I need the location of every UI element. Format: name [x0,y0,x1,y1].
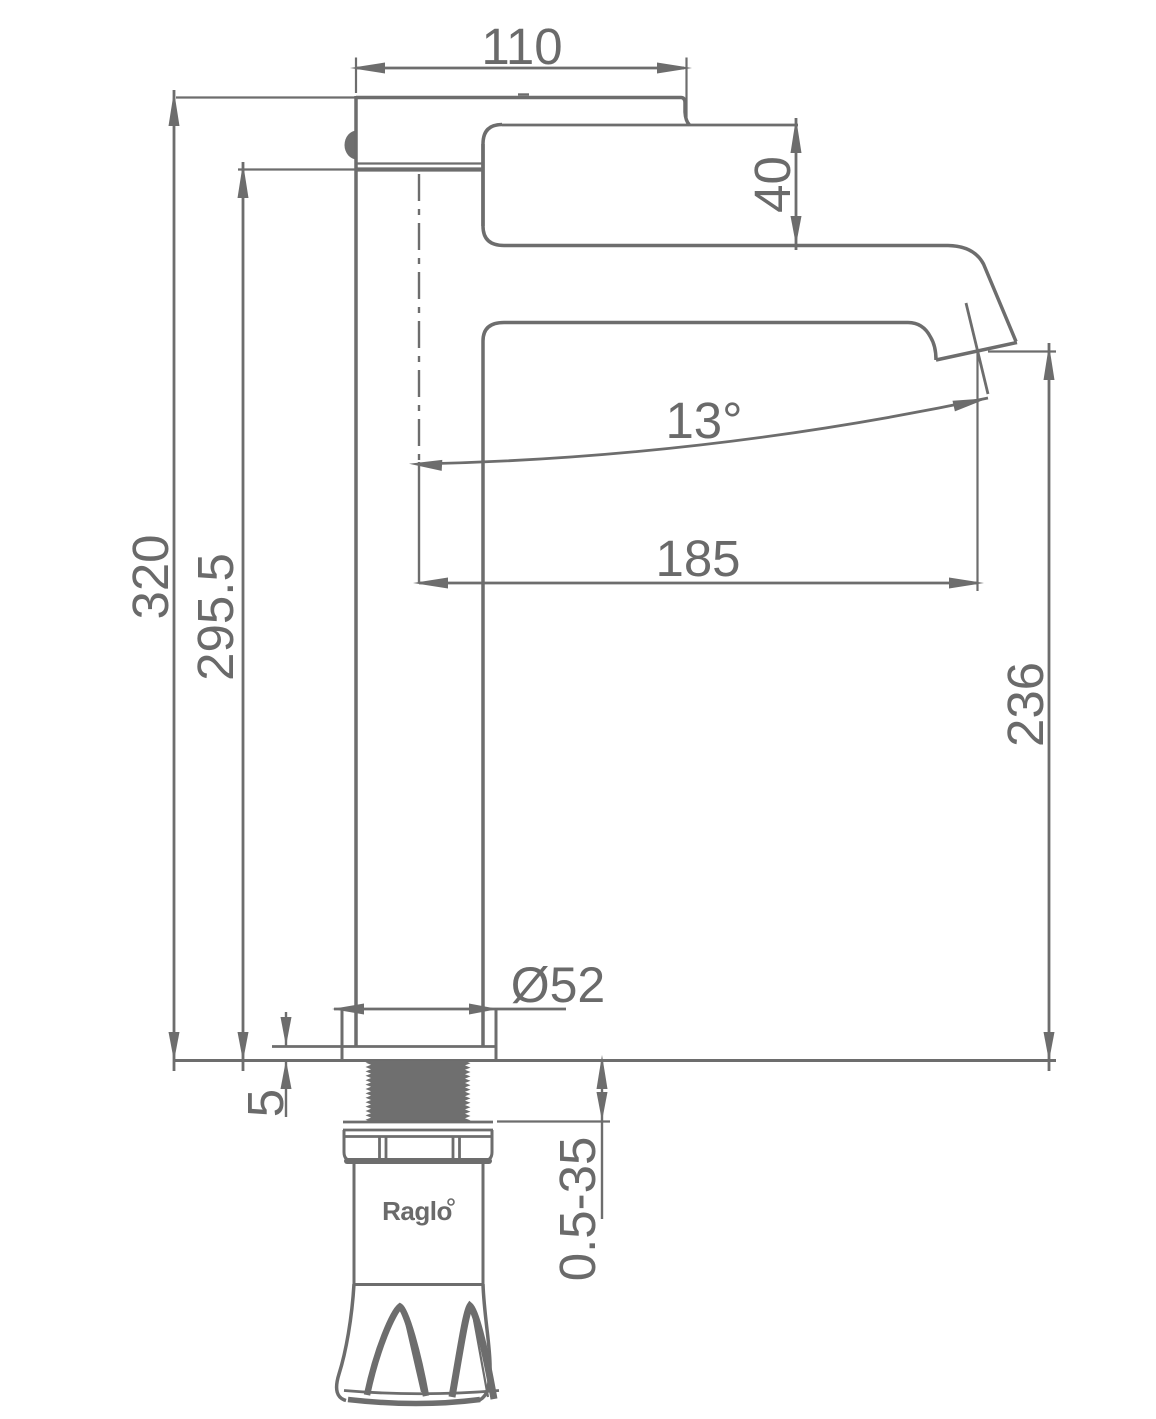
svg-text:Raglo: Raglo [382,1196,452,1226]
svg-text:5: 5 [237,1089,294,1117]
svg-text:40: 40 [744,156,801,213]
svg-text:185: 185 [655,530,740,587]
svg-text:13°: 13° [665,392,742,449]
svg-text:320: 320 [122,534,179,619]
svg-text:295.5: 295.5 [187,553,244,681]
svg-text:236: 236 [997,662,1054,747]
svg-text:0.5-35: 0.5-35 [549,1137,606,1282]
svg-text:110: 110 [481,18,562,75]
svg-text:Ø52: Ø52 [511,957,606,1013]
